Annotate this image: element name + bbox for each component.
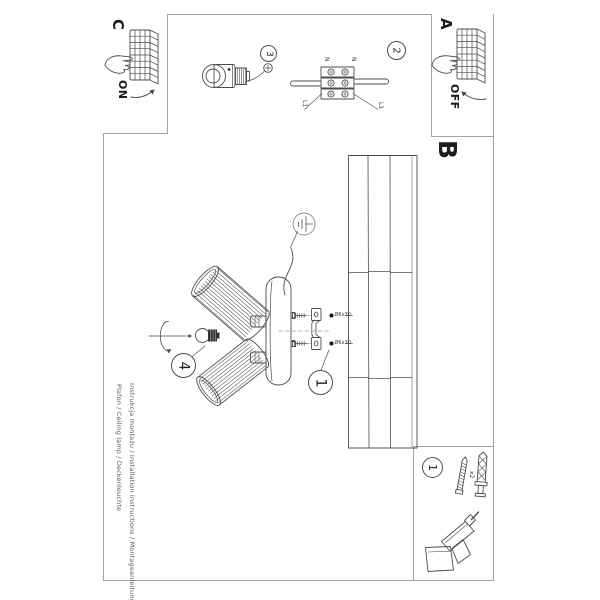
section-c-label: C	[109, 19, 126, 30]
step-2-badge: 2	[387, 41, 406, 60]
screw-spec-label: Ø6x30	[335, 313, 351, 318]
manual-page: C ON A OFF B N N L1 L1 Ø6x30 Ø6x30 x2 In…	[0, 0, 600, 600]
parts-step-1-badge: 1	[422, 457, 443, 478]
holder-part-illustration	[203, 64, 273, 88]
on-arrow-icon	[131, 90, 154, 98]
wall-plug-icon	[474, 452, 489, 497]
footer-line-2: Plafon / Ceiling lamp / Deckenleuchte	[115, 384, 122, 511]
quantity-label: x2	[467, 471, 474, 478]
bulb-icon	[196, 329, 220, 343]
section-b-label: B	[432, 140, 461, 159]
drill-icon	[426, 512, 479, 572]
step-4-badge: 4	[171, 353, 196, 378]
earth-symbol-icon	[291, 213, 316, 248]
lamp-shade-lower	[193, 336, 272, 409]
switch-on-illustration	[105, 30, 158, 98]
ceiling-panel	[349, 156, 418, 449]
light-switch-icon	[130, 30, 158, 84]
off-label: OFF	[447, 84, 460, 110]
line-art	[0, 0, 600, 600]
wire-left	[291, 81, 322, 86]
screw-spec-label: Ø6x30	[335, 341, 351, 346]
lamp-shade-upper	[188, 263, 274, 344]
section-a-label: A	[437, 18, 454, 30]
wire-label-n-right: N	[349, 57, 356, 62]
rotation-arrow-icon	[149, 321, 192, 350]
pressing-hand-icon	[432, 56, 459, 74]
power-cable	[284, 249, 293, 296]
step-1-badge: 1	[308, 370, 333, 395]
wire-label-l1-left: L1	[300, 100, 307, 107]
wire-right	[354, 79, 389, 84]
light-switch-icon	[457, 29, 485, 83]
mounting-bracket-icon	[312, 309, 322, 350]
off-arrow-icon	[462, 92, 486, 100]
footer-line-1: Instrukcja montażu / Installation instru…	[128, 383, 135, 600]
on-label: ON	[115, 80, 128, 99]
step-3-badge: 3	[260, 45, 277, 62]
wire-label-n-left: N	[322, 57, 329, 62]
wire-label-l1-right: L1	[376, 102, 383, 109]
pressing-hand-icon	[105, 56, 132, 74]
